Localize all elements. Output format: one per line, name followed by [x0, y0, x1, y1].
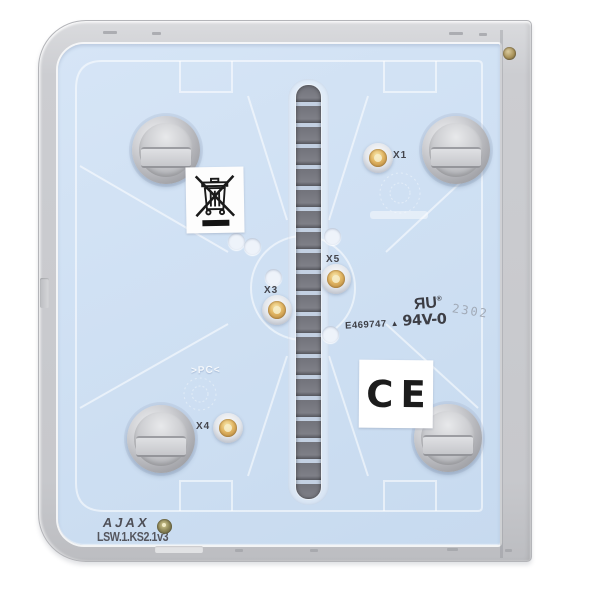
frame-seam-mark	[479, 33, 487, 36]
pilot-hole	[324, 228, 341, 245]
frame-seam-mark	[152, 32, 161, 35]
brand-logo: AJAX	[102, 515, 151, 530]
frame-seam-mark	[310, 549, 318, 552]
frame-seam-mark	[235, 549, 243, 552]
terminal-label-x1: X1	[393, 150, 407, 161]
terminal-contact-x5	[321, 264, 351, 294]
molder-triangle-icon: ▲	[390, 319, 398, 328]
crossed-out-bin-icon	[194, 174, 237, 219]
terminal-contact-x3	[262, 295, 292, 325]
terminal-label-x5: X5	[326, 254, 340, 265]
ul-file-number: E469747	[345, 318, 387, 331]
pilot-hole	[322, 326, 339, 343]
material-marking: >PC<	[191, 364, 221, 376]
flammability-rating: 94V-0	[402, 311, 447, 329]
frame-right-seam	[500, 30, 503, 558]
terminal-label-x3: X3	[264, 285, 278, 296]
pilot-hole	[265, 269, 282, 286]
terminal-label-x4: X4	[196, 421, 210, 432]
weee-label	[185, 166, 244, 233]
brass-rivet	[503, 47, 516, 60]
frame-seam-mark	[449, 32, 463, 35]
pilot-hole	[244, 238, 261, 255]
terminal-contact-x4	[213, 413, 243, 443]
terminal-contact-x1	[363, 143, 393, 173]
cam-screw-bottom-left	[127, 405, 195, 473]
frame-seam-mark	[447, 548, 458, 551]
product-photo-back-of-switch: X1 X3 X4 X5 CE RU® E469747	[0, 0, 600, 600]
model-number: LSW.1.KS2.1v3	[97, 529, 168, 544]
ce-mark-text: CE	[359, 372, 433, 416]
frame-seam-mark	[505, 549, 512, 552]
bottom-rivet	[157, 519, 172, 534]
frame-bottom-notch	[155, 546, 203, 553]
weee-solid-bar	[202, 220, 229, 226]
faint-moulding-text	[370, 211, 428, 219]
frame-side-notch	[40, 278, 49, 308]
frame-seam-mark	[103, 31, 117, 34]
cam-screw-top-right	[422, 116, 490, 184]
center-connector-slot	[296, 85, 321, 499]
ce-label: CE	[359, 360, 434, 429]
pilot-hole	[228, 233, 245, 250]
